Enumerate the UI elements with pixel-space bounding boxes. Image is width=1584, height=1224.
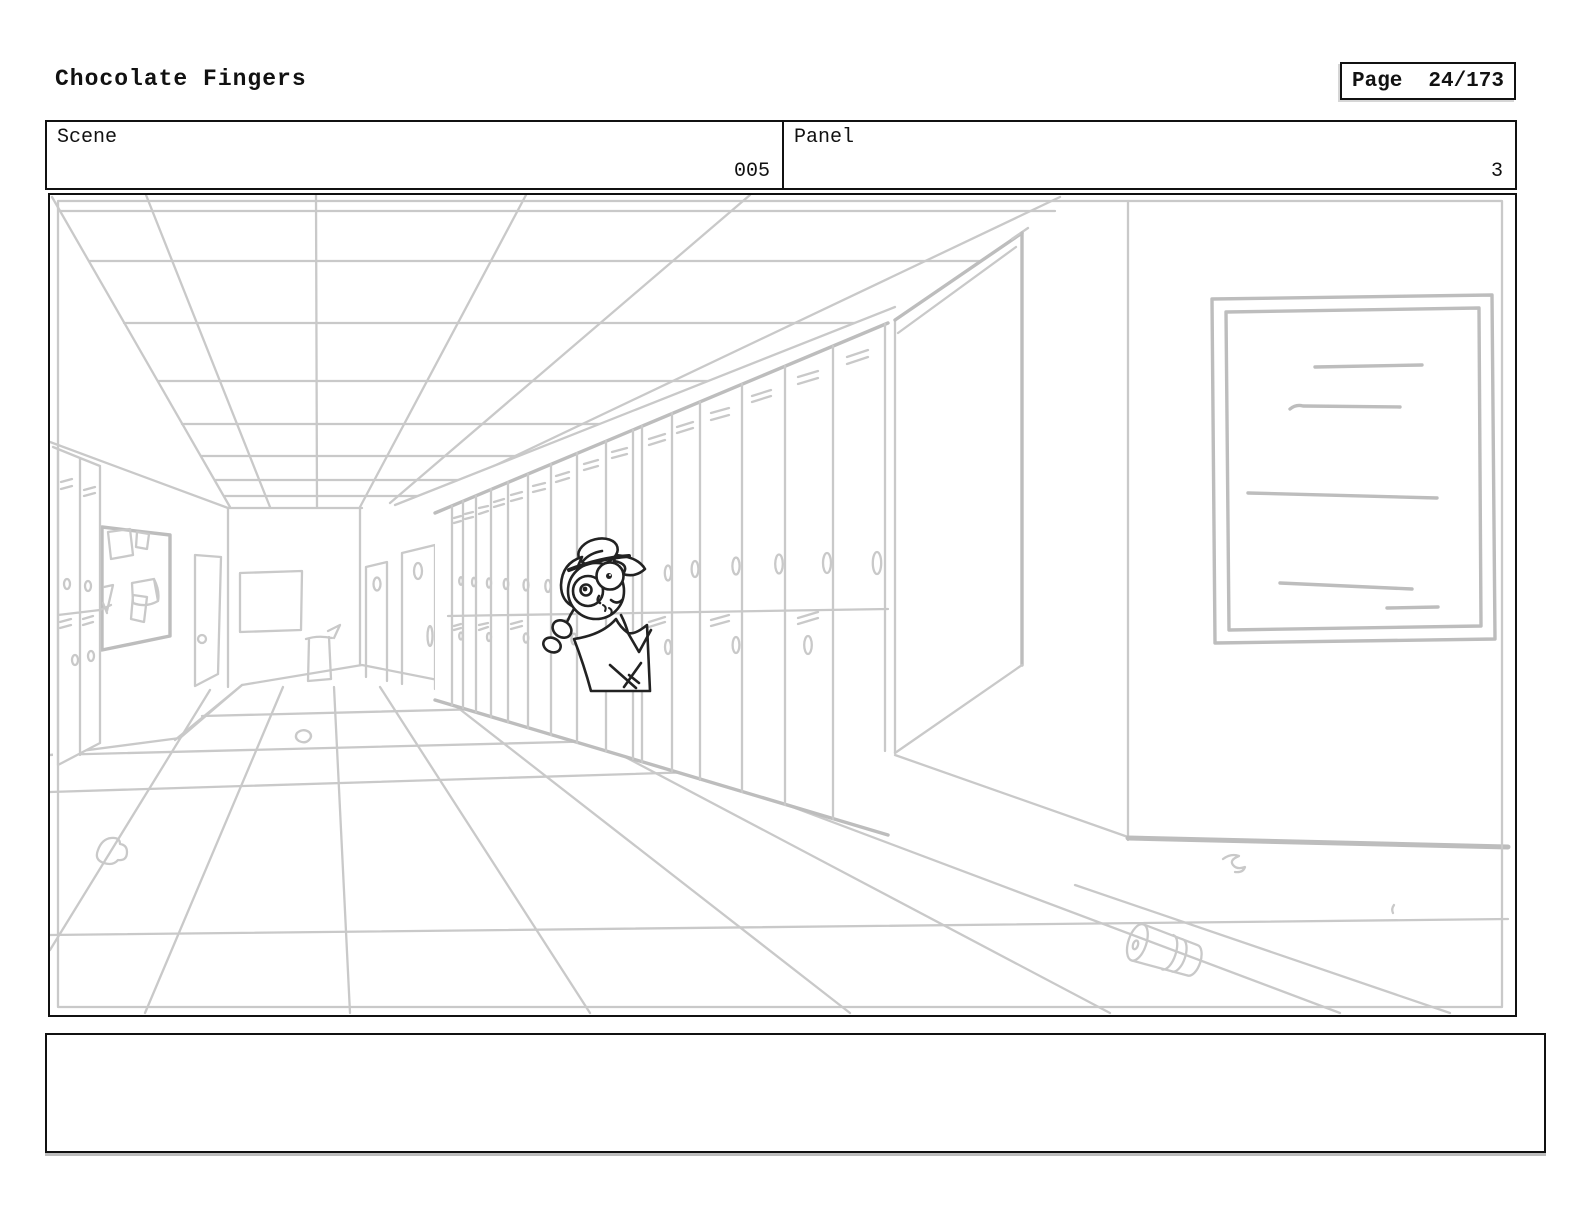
left-door bbox=[195, 555, 221, 686]
notes-box bbox=[45, 1033, 1546, 1153]
panel-value: 3 bbox=[1491, 160, 1503, 183]
left-pupil bbox=[583, 587, 588, 592]
panel-label: Panel bbox=[794, 126, 854, 149]
paper-wad-small bbox=[296, 730, 311, 742]
page-value: 24/173 bbox=[1428, 70, 1504, 93]
right-pupil bbox=[606, 573, 612, 579]
near-right-wall bbox=[1128, 200, 1508, 847]
scene-label: Scene bbox=[57, 126, 117, 149]
locker-bank bbox=[395, 307, 895, 835]
left-lockers bbox=[53, 445, 100, 769]
floor-scuff bbox=[1392, 905, 1394, 913]
project-title: Chocolate Fingers bbox=[55, 66, 307, 92]
page-label: Page bbox=[1352, 70, 1402, 93]
panel-cell: Panel 3 bbox=[784, 122, 1515, 188]
soda-can bbox=[1123, 921, 1206, 980]
scene-panel-row: Scene 005 Panel 3 bbox=[45, 120, 1517, 190]
left-wall bbox=[50, 442, 242, 769]
door-knob bbox=[198, 635, 206, 643]
storyboard-drawing-panel bbox=[48, 193, 1517, 1017]
back-wall bbox=[175, 508, 448, 740]
scene-value: 005 bbox=[734, 160, 770, 183]
open-locker-door bbox=[885, 228, 1128, 837]
page-indicator: Page 24/173 bbox=[1340, 62, 1516, 100]
hallway-illustration bbox=[50, 195, 1515, 1015]
wrapper-squiggle bbox=[1223, 855, 1245, 872]
storyboard-sheet: Chocolate Fingers Page 24/173 Scene 005 … bbox=[0, 0, 1584, 1224]
back-wall-poster bbox=[240, 571, 302, 632]
pinned-papers bbox=[108, 529, 159, 622]
scene-cell: Scene 005 bbox=[47, 122, 784, 188]
